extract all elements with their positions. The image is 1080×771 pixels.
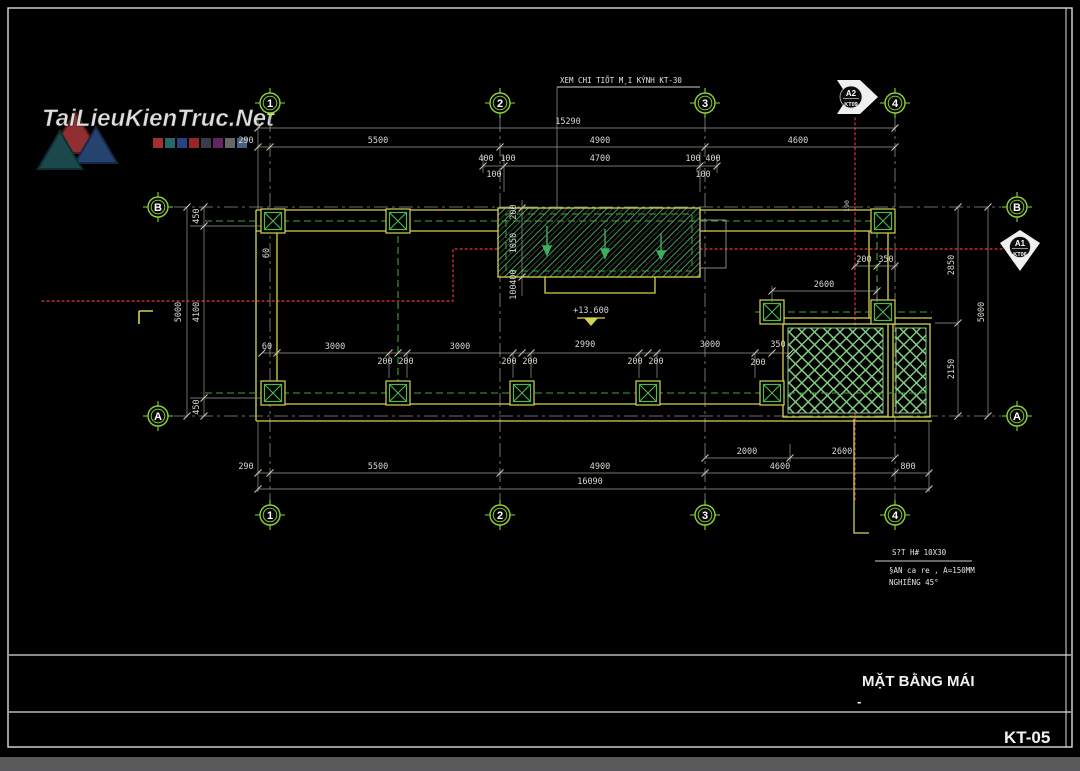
grid-bubble-4-top: 4 <box>892 98 899 110</box>
dim-label: 290 <box>238 136 253 146</box>
dim-label: 800 <box>900 462 915 472</box>
dim-label: 400 <box>509 269 519 284</box>
grid-bubble-B-left: B <box>154 202 162 214</box>
dim-label: 5000 <box>174 302 184 322</box>
grid-bubble-2-bottom: 2 <box>497 510 503 522</box>
dim-label: 400 <box>478 154 493 164</box>
dim-label: 1050 <box>509 233 519 253</box>
dim-label: 5500 <box>368 136 388 146</box>
dim-label: 4600 <box>788 136 808 146</box>
hatch-note-line1: S?T H# 10X30 <box>892 548 947 557</box>
dim-label: 190 <box>843 200 851 212</box>
dim-label: 3000 <box>325 342 345 352</box>
dim-label: 350 <box>878 255 893 265</box>
grid-bubble-4-bottom: 4 <box>892 510 899 522</box>
grid-bubble-A-right: A <box>1013 411 1021 423</box>
dim-label: 290 <box>238 462 253 472</box>
dim-label: 4700 <box>590 154 610 164</box>
dim-label: 100 <box>486 170 501 180</box>
dim-label: 100 <box>509 284 519 299</box>
dim-label: 2150 <box>947 359 957 379</box>
dim-label: 200 <box>750 358 765 368</box>
dim-label: 200 <box>509 204 519 219</box>
dim-label: 400 <box>705 154 720 164</box>
cad-drawing-screenshot: TaiLieuKienTruc.Net <box>0 0 1080 771</box>
watermark-square <box>153 138 163 148</box>
section-a1-sheet-ref: KT06 <box>1013 252 1026 258</box>
grid-bubble-A-left: A <box>154 411 162 423</box>
dim-label: 2600 <box>832 447 852 457</box>
sheet-number: KT-05 <box>1004 728 1050 747</box>
dim-label: 2600 <box>814 280 834 290</box>
dim-label: 2990 <box>575 340 595 350</box>
dim-label: 200 <box>627 357 642 367</box>
bottom-taskbar-strip <box>0 757 1080 771</box>
watermark-square <box>213 138 223 148</box>
dim-label: 5500 <box>368 462 388 472</box>
glass-roof <box>498 208 726 277</box>
grid-bubble-3-top: 3 <box>702 98 708 110</box>
dim-label: 4600 <box>770 462 790 472</box>
section-a2-label: A2 <box>846 89 857 98</box>
watermark-square <box>165 138 175 148</box>
dim-label: 5000 <box>977 302 987 322</box>
dim-label: 200 <box>377 357 392 367</box>
dim-label: 16090 <box>577 477 603 487</box>
dim-label: 3000 <box>700 340 720 350</box>
hatch-note-line3: NGHIÊNG 45° <box>889 578 939 587</box>
watermark-square <box>225 138 235 148</box>
dim-label: 3000 <box>450 342 470 352</box>
dim-label: 4100 <box>192 302 202 322</box>
section-a2-sheet-ref: KT09 <box>844 102 857 108</box>
watermark-brand-text: TaiLieuKienTruc.Net <box>42 105 275 132</box>
lattice-roof <box>788 328 926 413</box>
dim-label: 2850 <box>947 255 957 275</box>
dim-label: 15290 <box>555 117 581 127</box>
title-dash: - <box>857 694 861 709</box>
dim-label: 60 <box>262 248 272 258</box>
roof-plan-canvas: TaiLieuKienTruc.Net <box>0 0 1080 771</box>
dim-label: 350 <box>770 340 785 350</box>
dim-label: 60 <box>262 342 272 352</box>
section-a1-label: A1 <box>1015 239 1026 248</box>
dim-label: 200 <box>522 357 537 367</box>
grid-bubble-1-top: 1 <box>267 98 273 110</box>
grid-bubble-B-right: B <box>1013 202 1021 214</box>
grid-bubble-3-bottom: 3 <box>702 510 708 522</box>
grid-bubble-2-top: 2 <box>497 98 503 110</box>
dim-label: 450 <box>192 399 202 414</box>
detail-note-text: XEM CHI TIÕT M¸I KÝNH KT-30 <box>560 76 682 85</box>
watermark-square <box>177 138 187 148</box>
dim-label: 200 <box>501 357 516 367</box>
drawing-title: MẶT BẰNG MÁI <box>862 672 975 690</box>
dim-label: 200 <box>856 255 871 265</box>
dim-label: 4900 <box>590 136 610 146</box>
watermark-square <box>201 138 211 148</box>
level-value: +13.600 <box>573 306 609 316</box>
hatch-note-line2: §AN ca re , A=150MM <box>889 566 975 575</box>
dim-label: 4900 <box>590 462 610 472</box>
dim-label: 100 <box>500 154 515 164</box>
dim-label: 450 <box>192 208 202 223</box>
dim-label: 2000 <box>737 447 757 457</box>
dim-label: 200 <box>398 357 413 367</box>
watermark-square <box>189 138 199 148</box>
dim-label: 100 <box>685 154 700 164</box>
dim-label: 100 <box>695 170 710 180</box>
grid-bubble-1-bottom: 1 <box>267 510 273 522</box>
dim-label: 200 <box>648 357 663 367</box>
